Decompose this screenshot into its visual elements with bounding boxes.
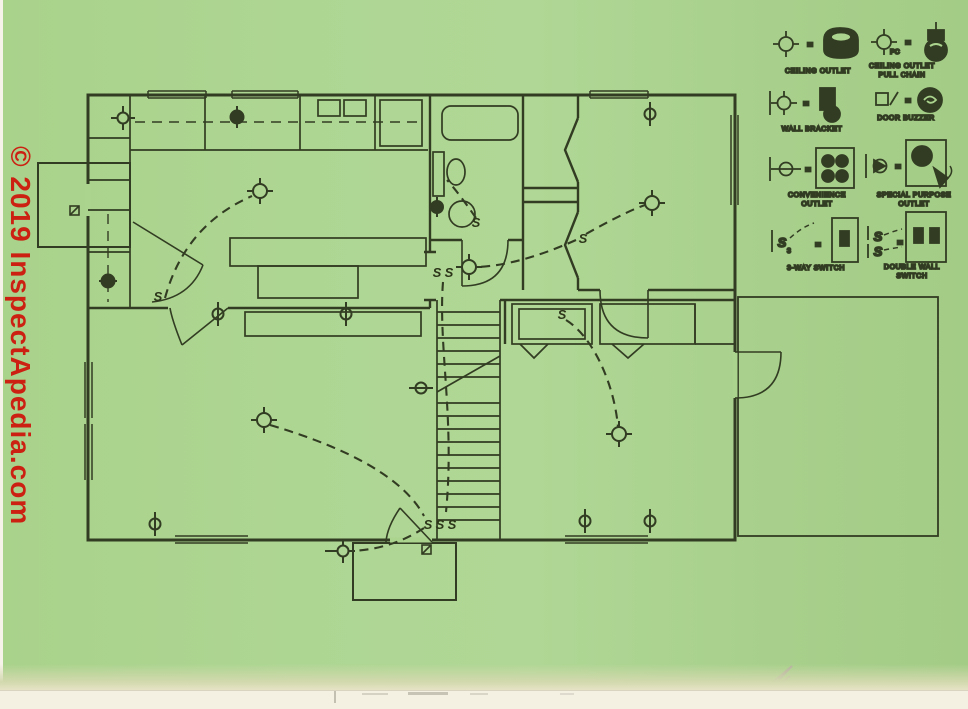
walls-outer: [88, 95, 735, 540]
floor-plan-figure: S S S S S S S S S = CEILING OUTLET PC: [0, 0, 968, 690]
switch-stairs-top-2: S: [445, 265, 454, 280]
pc-subscript: PC: [890, 49, 900, 56]
wiring-runs: [165, 180, 645, 551]
porch: [738, 297, 938, 536]
legend-wall-bracket: = WALL BRACKET: [770, 88, 842, 133]
page-edge-left: [0, 0, 3, 690]
legend-label: SWITCH: [896, 273, 927, 280]
equals-sign: =: [897, 238, 903, 249]
legend-special-purpose-outlet: = SPECIAL PURPOSE OUTLET: [866, 140, 952, 208]
switch-letter: S: [778, 235, 787, 250]
legend-double-wall-switch: S S = DOUBLE WALL SWITCH: [868, 212, 946, 280]
legend-label: WALL BRACKET: [782, 126, 843, 133]
legend-ceiling-outlet-pull-chain: PC = CEILING OUTLET PULL CHAIN: [869, 22, 947, 79]
legend-door-buzzer: = DOOR BUZZER: [876, 88, 942, 122]
equals-sign: =: [805, 165, 811, 176]
legend-three-way-switch: S 3 = 3-WAY SWITCH: [772, 218, 858, 272]
watermark: © 2019 InspectApedia.com: [4, 146, 36, 525]
equals-sign: =: [895, 162, 901, 173]
switch-rear-entry: S: [154, 289, 163, 304]
legend-label: CEILING OUTLET: [785, 68, 851, 75]
page-edge-bottom: [0, 690, 968, 709]
bedroom-closets: [512, 304, 735, 358]
legend-label: PULL CHAIN: [879, 72, 926, 79]
switch-hall: S: [579, 231, 588, 246]
switch-front-door-3: S: [448, 517, 457, 532]
bathroom-fixtures: [433, 106, 518, 227]
pen-doodle: [752, 666, 792, 690]
legend-label: CEILING OUTLET: [869, 63, 935, 70]
legend-label: OUTLET: [801, 201, 832, 208]
legend-label: SPECIAL PURPOSE: [877, 192, 952, 199]
switch-letter: S: [874, 244, 883, 259]
legend-ceiling-outlet: = CEILING OUTLET: [773, 28, 858, 75]
rear-stoop: [38, 163, 130, 247]
equals-sign: =: [807, 40, 813, 51]
floor-plan: [38, 91, 938, 600]
page-mark: [560, 693, 574, 695]
switch-front-door-1: S: [424, 517, 433, 532]
switch-bath: S: [472, 215, 481, 230]
scanned-page: © 2019 InspectApedia.com: [0, 0, 968, 690]
switch-letter: S: [874, 229, 883, 244]
convenience-outlets: [150, 102, 656, 536]
wall-bracket-lights: [111, 106, 355, 563]
legend-label: DOOR BUZZER: [877, 115, 935, 122]
door-buzzers: [70, 206, 431, 554]
page-mark: [408, 692, 448, 695]
front-stoop: [353, 543, 456, 600]
stairs: [437, 300, 500, 540]
switch-front-door-2: S: [436, 517, 445, 532]
legend-convenience-outlet: = CONVENIENCE OUTLET: [770, 148, 854, 208]
page-mark: [362, 693, 388, 695]
equals-sign: =: [803, 99, 809, 110]
switch-bedroom-br: S: [558, 307, 567, 322]
equals-sign: =: [905, 38, 911, 49]
legend-label: CONVENIENCE: [788, 192, 846, 199]
legend-label: OUTLET: [898, 201, 929, 208]
equals-sign: =: [815, 240, 821, 251]
legend-label: DOUBLE WALL: [884, 264, 940, 271]
page-mark: [470, 693, 488, 695]
walls-interior: [88, 95, 735, 344]
legend: = CEILING OUTLET PC = CEILING OUTLET PUL…: [770, 22, 952, 280]
switch-stairs-top-1: S: [433, 265, 442, 280]
equals-sign: =: [905, 96, 911, 107]
special-purpose-outlets: [99, 106, 443, 288]
three-subscript: 3: [787, 248, 791, 255]
legend-label: 3-WAY SWITCH: [787, 265, 845, 272]
kitchen-cabinets: [88, 95, 428, 336]
windows: [85, 91, 738, 543]
page-mark: [334, 691, 336, 703]
